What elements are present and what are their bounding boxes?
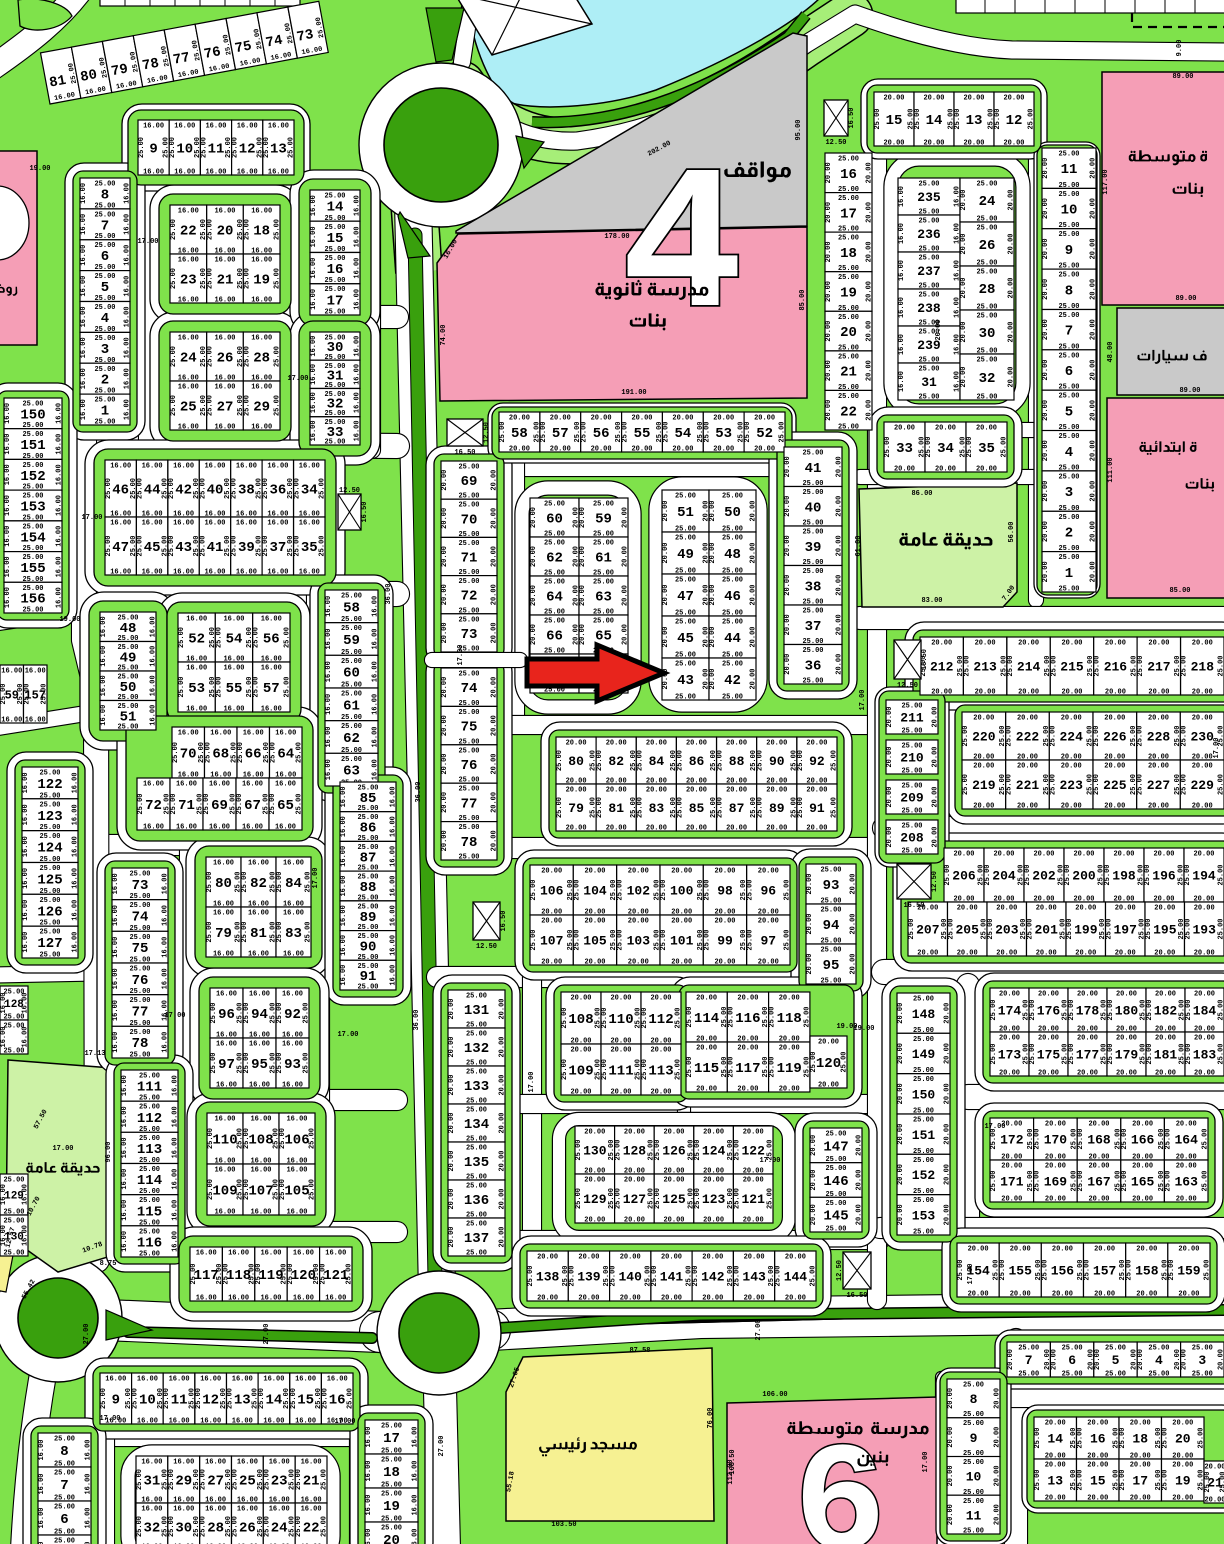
svg-text:16.00: 16.00 <box>1 668 22 676</box>
svg-text:9: 9 <box>149 142 157 158</box>
svg-text:16.00: 16.00 <box>110 520 131 528</box>
svg-text:25.00: 25.00 <box>775 1265 783 1286</box>
svg-text:121: 121 <box>741 1192 765 1207</box>
svg-text:83: 83 <box>649 801 665 816</box>
svg-text:108: 108 <box>248 1133 273 1149</box>
svg-text:16.00: 16.00 <box>178 257 199 265</box>
svg-text:112: 112 <box>648 1012 673 1028</box>
svg-text:78: 78 <box>461 835 478 851</box>
svg-text:20.00: 20.00 <box>886 826 894 847</box>
svg-text:73: 73 <box>296 27 315 46</box>
svg-text:25.00: 25.00 <box>957 1259 965 1280</box>
svg-text:13: 13 <box>1047 1474 1063 1489</box>
svg-text:25.00: 25.00 <box>575 1188 583 1209</box>
svg-text:16.00: 16.00 <box>38 1507 46 1528</box>
svg-text:25.00: 25.00 <box>1204 1471 1212 1492</box>
svg-text:25.00: 25.00 <box>232 1516 240 1537</box>
svg-text:20.00: 20.00 <box>935 466 956 474</box>
svg-text:25.00: 25.00 <box>841 1051 849 1072</box>
svg-text:16.00: 16.00 <box>204 569 225 577</box>
svg-text:20.00: 20.00 <box>448 1188 456 1209</box>
svg-text:20.00: 20.00 <box>606 825 627 833</box>
svg-text:25.00: 25.00 <box>54 1470 75 1478</box>
svg-text:16.00: 16.00 <box>237 1506 258 1514</box>
svg-text:20.00: 20.00 <box>1115 905 1136 913</box>
svg-text:25.00: 25.00 <box>190 1263 198 1284</box>
svg-text:25.00: 25.00 <box>802 647 823 655</box>
svg-text:20.00: 20.00 <box>856 1204 864 1225</box>
svg-text:16.00: 16.00 <box>248 910 269 918</box>
svg-text:132: 132 <box>464 1041 489 1057</box>
svg-text:126: 126 <box>662 1144 686 1159</box>
svg-text:20.00: 20.00 <box>886 706 894 727</box>
svg-text:110: 110 <box>212 1133 237 1149</box>
svg-text:6: 6 <box>60 1512 68 1528</box>
svg-text:25.00: 25.00 <box>1180 774 1188 795</box>
svg-text:25.00: 25.00 <box>357 963 378 971</box>
svg-text:25.00: 25.00 <box>641 1007 649 1028</box>
svg-text:25.00: 25.00 <box>1164 1128 1172 1149</box>
svg-text:25.00: 25.00 <box>341 756 362 764</box>
svg-text:63: 63 <box>343 764 360 780</box>
svg-text:16.00: 16.00 <box>251 384 272 392</box>
svg-text:20.00: 20.00 <box>754 415 775 423</box>
svg-text:20.00: 20.00 <box>1003 140 1024 148</box>
svg-text:111: 111 <box>137 1080 162 1096</box>
svg-text:25.00: 25.00 <box>914 108 922 129</box>
svg-text:25.00: 25.00 <box>168 478 176 499</box>
svg-text:23: 23 <box>180 273 197 289</box>
svg-text:20.00: 20.00 <box>894 425 915 433</box>
svg-text:16.00: 16.00 <box>205 1506 226 1514</box>
svg-text:16.00: 16.00 <box>112 1000 120 1021</box>
svg-text:20.00: 20.00 <box>1116 991 1137 999</box>
svg-text:16.00: 16.00 <box>325 661 333 682</box>
svg-text:25.00: 25.00 <box>341 593 362 601</box>
svg-text:119: 119 <box>777 1061 802 1077</box>
svg-text:25.00: 25.00 <box>129 966 150 974</box>
svg-text:20.00: 20.00 <box>784 575 792 596</box>
svg-text:16.00: 16.00 <box>250 1167 271 1175</box>
svg-text:20.00: 20.00 <box>1090 359 1098 380</box>
svg-text:20.00: 20.00 <box>441 715 449 736</box>
svg-text:16.00: 16.00 <box>178 384 199 392</box>
svg-text:25.00: 25.00 <box>976 269 997 277</box>
svg-text:25.00: 25.00 <box>207 346 215 367</box>
svg-text:25.00: 25.00 <box>767 1188 775 1209</box>
svg-text:79: 79 <box>110 61 129 80</box>
svg-text:17.00: 17.00 <box>337 1031 358 1039</box>
svg-text:55: 55 <box>634 426 651 442</box>
svg-text:25.00: 25.00 <box>966 436 974 457</box>
svg-text:25.00: 25.00 <box>1218 864 1224 885</box>
svg-text:79: 79 <box>568 801 584 816</box>
svg-text:100: 100 <box>670 884 694 899</box>
svg-text:20.00: 20.00 <box>1090 279 1098 300</box>
svg-text:20.00: 20.00 <box>646 825 667 833</box>
svg-text:11: 11 <box>208 142 225 158</box>
svg-text:117.00: 117.00 <box>1102 169 1110 194</box>
svg-text:25.00: 25.00 <box>636 750 644 771</box>
svg-text:16.00: 16.00 <box>267 520 288 528</box>
svg-text:25.00: 25.00 <box>963 1528 984 1536</box>
svg-text:57: 57 <box>263 681 280 697</box>
svg-text:165: 165 <box>1131 1175 1155 1190</box>
svg-text:25.00: 25.00 <box>94 242 115 250</box>
svg-text:16.00: 16.00 <box>22 1184 30 1205</box>
svg-text:20.00: 20.00 <box>1218 1349 1224 1370</box>
svg-text:20.00: 20.00 <box>448 1226 456 1247</box>
svg-text:16.00: 16.00 <box>263 1376 284 1384</box>
svg-text:25.00: 25.00 <box>913 1157 934 1165</box>
svg-text:20.00: 20.00 <box>631 415 652 423</box>
svg-text:16.00: 16.00 <box>121 1106 129 1127</box>
svg-text:20.00: 20.00 <box>784 614 792 635</box>
svg-text:25.00: 25.00 <box>1185 918 1193 939</box>
svg-text:128: 128 <box>623 1144 647 1159</box>
svg-text:20.00: 20.00 <box>663 1177 684 1185</box>
svg-text:20.00: 20.00 <box>825 321 833 342</box>
svg-text:20.00: 20.00 <box>1194 991 1215 999</box>
svg-text:173: 173 <box>998 1048 1022 1063</box>
svg-text:16.00: 16.00 <box>56 434 64 455</box>
svg-text:20.00: 20.00 <box>606 787 627 795</box>
svg-text:20.00: 20.00 <box>662 542 670 563</box>
svg-text:20.00: 20.00 <box>944 1003 952 1024</box>
svg-text:25.00: 25.00 <box>802 568 823 576</box>
svg-text:16.00: 16.00 <box>372 628 380 649</box>
svg-text:20.00: 20.00 <box>1061 640 1082 648</box>
svg-text:16.00: 16.00 <box>22 1225 30 1246</box>
svg-text:16.00: 16.00 <box>286 1209 307 1217</box>
svg-text:20.00: 20.00 <box>996 950 1017 958</box>
svg-text:20.00: 20.00 <box>550 446 571 454</box>
svg-text:20.00: 20.00 <box>810 1169 818 1190</box>
svg-text:12.50: 12.50 <box>825 139 846 147</box>
svg-text:16.00: 16.00 <box>898 223 906 244</box>
svg-text:17.00: 17.00 <box>984 1123 1005 1131</box>
svg-text:25.00: 25.00 <box>573 879 581 900</box>
svg-text:123: 123 <box>702 1192 726 1207</box>
svg-text:25.00: 25.00 <box>990 1170 998 1191</box>
svg-text:127: 127 <box>37 936 62 952</box>
svg-text:17: 17 <box>840 206 857 222</box>
svg-text:25.00: 25.00 <box>963 1459 984 1467</box>
svg-text:25.00: 25.00 <box>913 1036 934 1044</box>
svg-text:16.00: 16.00 <box>237 1459 258 1467</box>
svg-text:36.00: 36.00 <box>415 781 423 802</box>
svg-text:104: 104 <box>583 884 607 899</box>
svg-text:16.00: 16.00 <box>38 1439 46 1460</box>
svg-text:71: 71 <box>461 551 478 567</box>
svg-text:25.00: 25.00 <box>296 793 304 814</box>
svg-text:74.00: 74.00 <box>440 324 448 345</box>
svg-text:65: 65 <box>277 798 294 814</box>
svg-text:20.00: 20.00 <box>897 1043 905 1064</box>
svg-text:16.00: 16.00 <box>210 730 231 738</box>
svg-text:20.00: 20.00 <box>917 950 938 958</box>
svg-text:16.00: 16.00 <box>243 730 264 738</box>
svg-text:25.00: 25.00 <box>458 671 479 679</box>
svg-text:25.00: 25.00 <box>874 108 882 129</box>
svg-text:25.00: 25.00 <box>324 335 345 343</box>
svg-text:25.00: 25.00 <box>675 1007 683 1028</box>
svg-text:16: 16 <box>327 262 344 278</box>
svg-text:25.00: 25.00 <box>561 1007 569 1028</box>
svg-text:216: 216 <box>1104 660 1128 675</box>
svg-text:25.00: 25.00 <box>1185 999 1193 1020</box>
svg-text:20.00: 20.00 <box>1148 640 1169 648</box>
svg-text:15: 15 <box>886 113 903 129</box>
svg-text:25.00: 25.00 <box>105 535 113 556</box>
svg-text:49: 49 <box>677 547 694 563</box>
svg-text:16.00: 16.00 <box>110 463 131 471</box>
svg-text:16.00: 16.00 <box>141 1506 162 1514</box>
svg-text:16.00: 16.00 <box>105 1376 126 1384</box>
svg-text:20.00: 20.00 <box>866 241 874 262</box>
svg-text:59: 59 <box>595 512 612 528</box>
svg-text:16.00: 16.00 <box>142 569 163 577</box>
svg-text:16.00: 16.00 <box>390 905 398 926</box>
svg-text:16.00: 16.00 <box>283 951 304 959</box>
svg-text:25.00: 25.00 <box>884 436 892 457</box>
svg-text:20.00: 20.00 <box>766 825 787 833</box>
svg-text:25.00: 25.00 <box>601 1007 609 1028</box>
svg-text:16.00: 16.00 <box>186 665 207 673</box>
svg-text:20.00: 20.00 <box>624 1217 645 1225</box>
svg-text:20.00: 20.00 <box>1132 1121 1153 1129</box>
svg-text:25.00: 25.00 <box>1018 1371 1039 1379</box>
svg-text:25.00: 25.00 <box>908 918 916 939</box>
svg-text:25.00: 25.00 <box>276 871 284 892</box>
svg-text:25.00: 25.00 <box>232 1469 240 1490</box>
svg-text:137: 137 <box>464 1231 489 1247</box>
svg-text:16.00: 16.00 <box>412 1426 420 1447</box>
svg-text:25.00: 25.00 <box>990 999 998 1020</box>
svg-text:25.00: 25.00 <box>274 268 282 289</box>
svg-text:20.00: 20.00 <box>836 614 844 635</box>
svg-text:109: 109 <box>212 1184 237 1200</box>
svg-text:20.00: 20.00 <box>579 507 587 528</box>
svg-text:25.00: 25.00 <box>573 929 581 950</box>
svg-text:77: 77 <box>172 50 191 69</box>
svg-text:16.00: 16.00 <box>213 910 234 918</box>
svg-text:109: 109 <box>568 1064 593 1080</box>
svg-text:12: 12 <box>239 142 256 158</box>
svg-text:16.00: 16.00 <box>310 195 318 216</box>
svg-text:17.00: 17.00 <box>922 1451 930 1472</box>
svg-text:20.00: 20.00 <box>850 873 858 894</box>
svg-text:8: 8 <box>1065 283 1073 299</box>
svg-text:16.00: 16.00 <box>310 364 318 385</box>
svg-text:16.00: 16.00 <box>390 846 398 867</box>
svg-text:20.00: 20.00 <box>1155 1070 1176 1078</box>
svg-text:16.00: 16.00 <box>390 935 398 956</box>
svg-text:20.00: 20.00 <box>1090 400 1098 421</box>
svg-text:16.00: 16.00 <box>162 905 170 926</box>
svg-text:25.00: 25.00 <box>990 1128 998 1149</box>
svg-text:25.00: 25.00 <box>838 314 859 322</box>
svg-text:25.00: 25.00 <box>499 421 507 442</box>
svg-text:99: 99 <box>717 934 733 949</box>
svg-text:25.00: 25.00 <box>838 156 859 164</box>
svg-text:35: 35 <box>301 540 318 556</box>
svg-text:25.00: 25.00 <box>1106 918 1114 939</box>
svg-text:107: 107 <box>248 1184 273 1200</box>
svg-text:20.00: 20.00 <box>1137 1349 1145 1370</box>
svg-text:17.00: 17.00 <box>287 375 308 383</box>
svg-text:25.00: 25.00 <box>733 1139 741 1160</box>
svg-text:17.00: 17.00 <box>312 867 320 888</box>
svg-text:25.00: 25.00 <box>139 1073 160 1081</box>
svg-text:20.00: 20.00 <box>696 1045 717 1053</box>
svg-text:20.00: 20.00 <box>976 466 997 474</box>
svg-text:32: 32 <box>143 1521 160 1537</box>
svg-text:30: 30 <box>979 326 996 342</box>
svg-text:25.00: 25.00 <box>295 1516 303 1537</box>
svg-text:25.00: 25.00 <box>243 1002 251 1023</box>
svg-text:114: 114 <box>694 1011 719 1027</box>
svg-text:16.00: 16.00 <box>310 420 318 441</box>
svg-text:25.00: 25.00 <box>1077 1427 1085 1448</box>
svg-text:16.00: 16.00 <box>261 706 282 714</box>
svg-text:25.00: 25.00 <box>117 724 138 732</box>
svg-text:221: 221 <box>1016 778 1040 793</box>
svg-text:48.00: 48.00 <box>1107 341 1115 362</box>
svg-text:54: 54 <box>226 632 243 648</box>
svg-text:20.00: 20.00 <box>932 706 940 727</box>
svg-text:20.00: 20.00 <box>1130 1462 1151 1470</box>
svg-text:20.00: 20.00 <box>960 321 968 342</box>
svg-text:20.00: 20.00 <box>968 1291 989 1299</box>
svg-text:153: 153 <box>912 1209 936 1224</box>
svg-text:25.00: 25.00 <box>129 1052 150 1060</box>
svg-text:235: 235 <box>917 190 941 205</box>
svg-text:25.00: 25.00 <box>976 225 997 233</box>
svg-text:20.00: 20.00 <box>1087 1420 1108 1428</box>
svg-text:25.00: 25.00 <box>1218 918 1224 939</box>
svg-text:12.50: 12.50 <box>339 487 360 495</box>
svg-text:25.00: 25.00 <box>838 195 859 203</box>
svg-text:16.00: 16.00 <box>365 1528 373 1544</box>
svg-text:42: 42 <box>724 673 741 689</box>
svg-text:25.00: 25.00 <box>1137 725 1145 746</box>
svg-text:20.00: 20.00 <box>1033 851 1054 859</box>
svg-text:25.00: 25.00 <box>1034 1427 1042 1448</box>
svg-text:25.00: 25.00 <box>676 750 684 771</box>
svg-text:193: 193 <box>1192 923 1216 938</box>
svg-text:25.00: 25.00 <box>269 793 277 814</box>
svg-text:25.00: 25.00 <box>324 419 345 427</box>
svg-text:25.00: 25.00 <box>200 1516 208 1537</box>
svg-text:25.00: 25.00 <box>838 393 859 401</box>
svg-text:25.00: 25.00 <box>556 797 564 818</box>
svg-text:16.00: 16.00 <box>0 1184 8 1205</box>
svg-text:98: 98 <box>717 884 733 899</box>
svg-text:25.00: 25.00 <box>1094 655 1102 676</box>
svg-text:93: 93 <box>823 878 840 894</box>
svg-text:20.00: 20.00 <box>744 1295 765 1303</box>
svg-text:16.00: 16.00 <box>4 434 12 455</box>
svg-text:25.00: 25.00 <box>39 865 60 873</box>
svg-text:236: 236 <box>917 227 941 242</box>
svg-text:16.00: 16.00 <box>372 596 380 617</box>
svg-text:139: 139 <box>577 1270 601 1285</box>
svg-text:16.00: 16.00 <box>162 1032 170 1053</box>
svg-text:141: 141 <box>660 1270 684 1285</box>
svg-text:25.00: 25.00 <box>129 871 150 879</box>
svg-text:25.00: 25.00 <box>913 1117 934 1125</box>
svg-text:35: 35 <box>978 441 995 457</box>
svg-text:16.00: 16.00 <box>112 905 120 926</box>
svg-text:20.00: 20.00 <box>606 740 627 748</box>
svg-text:25.00: 25.00 <box>357 933 378 941</box>
svg-text:25.00: 25.00 <box>139 1251 160 1259</box>
svg-text:20.00: 20.00 <box>743 1177 764 1185</box>
svg-text:16.00: 16.00 <box>286 1116 307 1124</box>
svg-text:87.58: 87.58 <box>629 1347 650 1355</box>
svg-text:25.00: 25.00 <box>303 1052 311 1073</box>
svg-text:9: 9 <box>1065 243 1073 259</box>
svg-text:25.00: 25.00 <box>1058 312 1079 320</box>
svg-text:20.00: 20.00 <box>1090 319 1098 340</box>
svg-text:84: 84 <box>285 876 302 892</box>
svg-text:16.00: 16.00 <box>365 1460 373 1481</box>
svg-text:94: 94 <box>251 1007 268 1023</box>
svg-text:38: 38 <box>238 483 255 499</box>
svg-text:16.00: 16.00 <box>4 587 12 608</box>
svg-text:20.00: 20.00 <box>491 622 499 643</box>
svg-text:25.00: 25.00 <box>466 1221 487 1229</box>
svg-text:213: 213 <box>973 660 997 675</box>
svg-text:20.00: 20.00 <box>1136 1246 1157 1254</box>
svg-text:53: 53 <box>188 681 205 697</box>
svg-text:25.00: 25.00 <box>825 1131 846 1139</box>
svg-text:138: 138 <box>536 1270 560 1285</box>
svg-text:79: 79 <box>215 926 232 942</box>
svg-text:25.00: 25.00 <box>797 750 805 771</box>
svg-text:25.00: 25.00 <box>236 793 244 814</box>
svg-text:16.00: 16.00 <box>251 208 272 216</box>
svg-text:86.00: 86.00 <box>911 490 932 498</box>
svg-text:25.00: 25.00 <box>722 577 743 585</box>
svg-text:56: 56 <box>593 426 610 442</box>
svg-text:6: 6 <box>101 249 109 265</box>
svg-text:25.00: 25.00 <box>22 401 43 409</box>
svg-text:25.00: 25.00 <box>199 535 207 556</box>
svg-text:20.00: 20.00 <box>856 1135 864 1156</box>
svg-text:20.00: 20.00 <box>1104 715 1125 723</box>
svg-text:9: 9 <box>970 1431 978 1446</box>
svg-text:20.00: 20.00 <box>714 918 735 926</box>
svg-text:66: 66 <box>546 629 563 645</box>
svg-text:25.00: 25.00 <box>1058 514 1079 522</box>
svg-text:52: 52 <box>188 632 205 648</box>
svg-text:200: 200 <box>1072 869 1096 884</box>
svg-text:85: 85 <box>689 801 705 816</box>
svg-text:25.00: 25.00 <box>596 797 604 818</box>
svg-text:133: 133 <box>464 1079 489 1095</box>
svg-text:16.00: 16.00 <box>236 569 257 577</box>
svg-text:25.00: 25.00 <box>458 502 479 510</box>
svg-text:25.00: 25.00 <box>39 952 60 960</box>
svg-text:20.00: 20.00 <box>968 1246 989 1254</box>
svg-text:25.00: 25.00 <box>717 797 725 818</box>
svg-text:124: 124 <box>37 841 62 857</box>
svg-text:20.00: 20.00 <box>836 575 844 596</box>
svg-text:25.00: 25.00 <box>1107 1043 1115 1064</box>
svg-text:16.00: 16.00 <box>100 616 108 637</box>
